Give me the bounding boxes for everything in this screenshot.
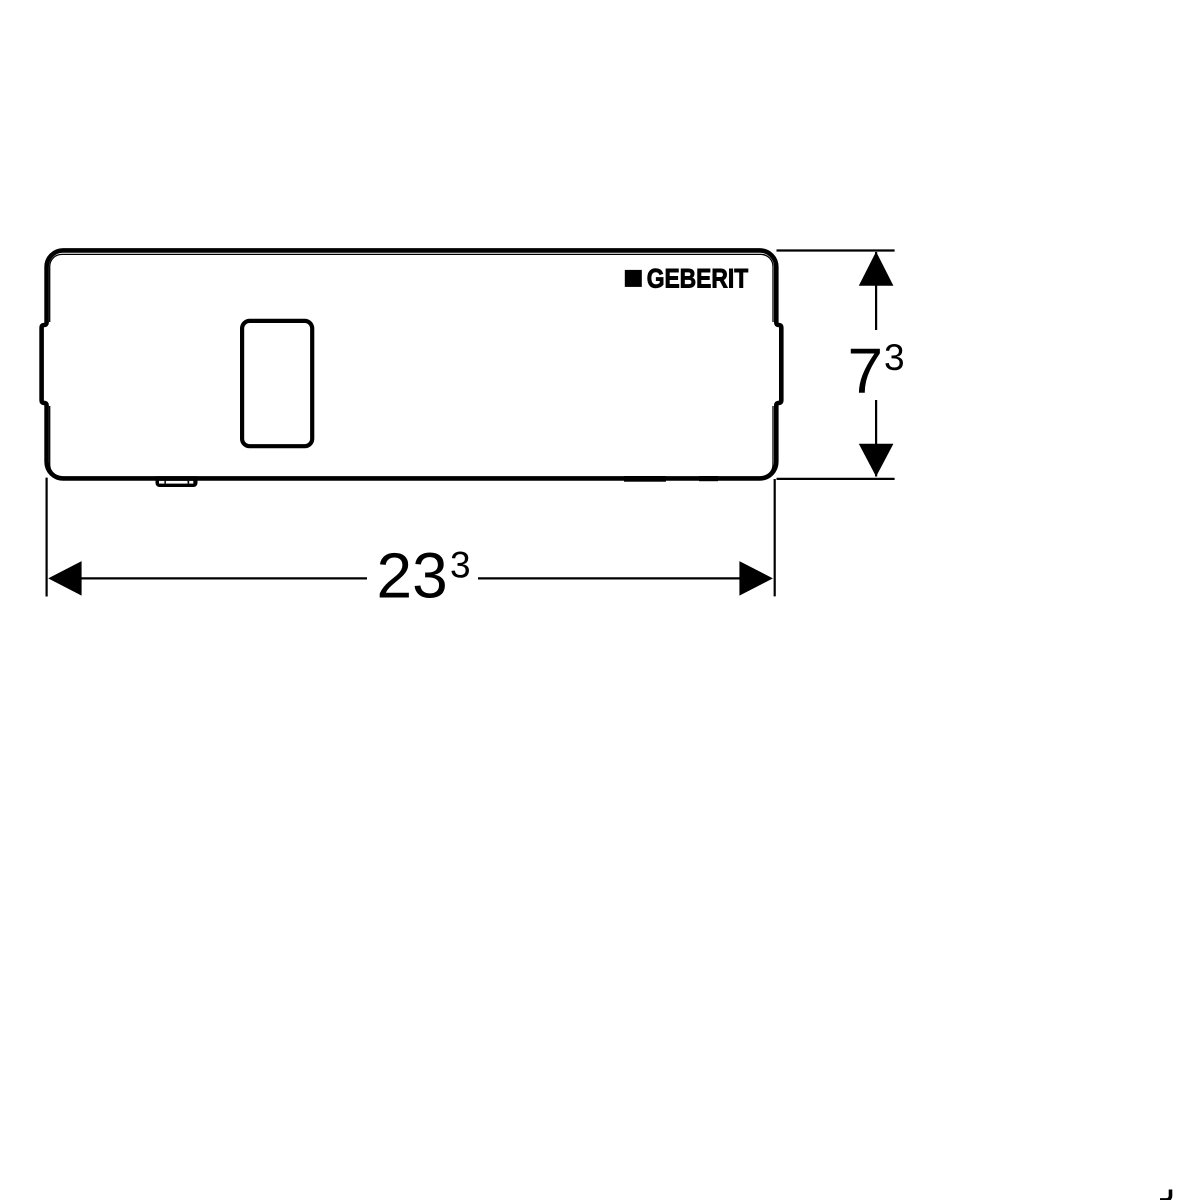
svg-text:GEBERIT: GEBERIT [647, 264, 749, 294]
svg-text:7: 7 [848, 335, 884, 407]
svg-text:3: 3 [884, 337, 905, 378]
svg-text:23: 23 [377, 540, 448, 612]
svg-text:3: 3 [450, 545, 471, 586]
